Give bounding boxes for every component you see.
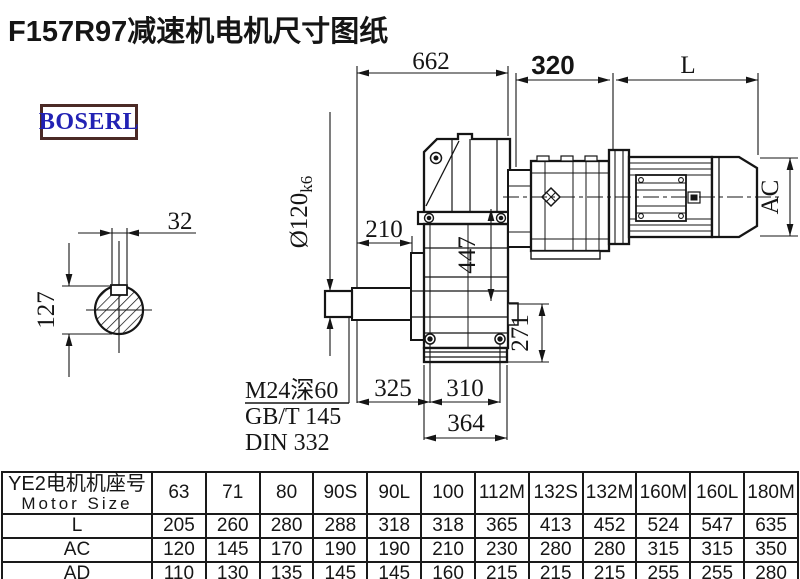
motor-size-header-en: Motor Size — [3, 495, 151, 513]
motor-size-header: YE2电机机座号 Motor Size — [2, 472, 152, 514]
table-header-row: YE2电机机座号 Motor Size 63718090S90L100112M1… — [2, 472, 798, 514]
column-header-63: 63 — [152, 472, 206, 514]
column-header-100: 100 — [421, 472, 475, 514]
dim-center-height: 447 — [454, 236, 481, 274]
cell-L-80: 280 — [260, 514, 314, 538]
cell-AC-112M: 230 — [475, 538, 529, 562]
cell-AC-132S: 280 — [529, 538, 583, 562]
note-standard-din: DIN 332 — [245, 430, 330, 456]
row-label-AC: AC — [2, 538, 152, 562]
dim-shaft-diameter: Ø120k6 — [286, 176, 316, 249]
cell-AD-71: 130 — [206, 562, 260, 579]
dim-shaft-drop: 127 — [33, 291, 60, 329]
cell-AC-160L: 315 — [690, 538, 744, 562]
page: F157R97减速机电机尺寸图纸 BOSERL — [0, 0, 800, 579]
cell-AD-100: 160 — [421, 562, 475, 579]
cell-AC-63: 120 — [152, 538, 206, 562]
cell-AD-90L: 145 — [367, 562, 421, 579]
gearbox-body — [325, 134, 518, 362]
dim-overall-length: 662 — [412, 48, 450, 75]
motor-size-table: YE2电机机座号 Motor Size 63718090S90L100112M1… — [1, 471, 799, 579]
column-header-80: 80 — [260, 472, 314, 514]
column-header-90S: 90S — [313, 472, 367, 514]
cell-L-63: 205 — [152, 514, 206, 538]
cell-AD-90S: 145 — [313, 562, 367, 579]
table-row-AC: AC120145170190190210230280280315315350 — [2, 538, 798, 562]
dim-shaft-step: 210 — [365, 216, 403, 243]
note-tap: M24深60 — [245, 377, 338, 404]
cell-AD-112M: 215 — [475, 562, 529, 579]
cell-AD-80: 135 — [260, 562, 314, 579]
cell-L-100: 318 — [421, 514, 475, 538]
keyway — [111, 285, 127, 295]
dim-flange-width: 364 — [447, 410, 485, 437]
cell-AC-180M: 350 — [744, 538, 798, 562]
input-adapter — [508, 156, 609, 259]
cell-L-112M: 365 — [475, 514, 529, 538]
row-label-L: L — [2, 514, 152, 538]
cell-AC-71: 145 — [206, 538, 260, 562]
column-header-160M: 160M — [636, 472, 690, 514]
cell-L-160L: 547 — [690, 514, 744, 538]
dim-foot-offset: 325 — [374, 375, 412, 402]
cell-AC-132M: 280 — [583, 538, 637, 562]
column-header-132S: 132S — [529, 472, 583, 514]
cell-AD-160M: 255 — [636, 562, 690, 579]
cell-AC-160M: 315 — [636, 538, 690, 562]
cell-AD-63: 110 — [152, 562, 206, 579]
dim-adapter-length: 320 — [531, 50, 574, 80]
cell-AC-90S: 190 — [313, 538, 367, 562]
column-header-71: 71 — [206, 472, 260, 514]
cell-AC-90L: 190 — [367, 538, 421, 562]
dim-motor-length: L — [680, 52, 695, 79]
cell-AC-100: 210 — [421, 538, 475, 562]
cell-AD-180M: 280 — [744, 562, 798, 579]
cell-AD-132S: 215 — [529, 562, 583, 579]
note-standard-gbt: GB/T 145 — [245, 404, 341, 430]
cell-AD-160L: 255 — [690, 562, 744, 579]
table-row-L: L205260280288318318365413452524547635 — [2, 514, 798, 538]
motor-size-header-cn: YE2电机机座号 — [3, 474, 151, 495]
column-header-90L: 90L — [367, 472, 421, 514]
technical-drawing: 32 127 — [0, 0, 800, 470]
cell-L-71: 260 — [206, 514, 260, 538]
column-header-112M: 112M — [475, 472, 529, 514]
cell-AC-80: 170 — [260, 538, 314, 562]
cell-L-132M: 452 — [583, 514, 637, 538]
cell-AD-132M: 215 — [583, 562, 637, 579]
cell-L-90L: 318 — [367, 514, 421, 538]
column-header-180M: 180M — [744, 472, 798, 514]
dim-bolt-spacing: 310 — [446, 375, 484, 402]
cell-L-160M: 524 — [636, 514, 690, 538]
shaft-section-view — [62, 228, 196, 377]
row-label-AD: AD — [2, 562, 152, 579]
column-header-160L: 160L — [690, 472, 744, 514]
cell-L-132S: 413 — [529, 514, 583, 538]
dim-motor-diameter: AC — [757, 180, 784, 215]
dim-base-height: 271 — [507, 314, 534, 352]
table-row-AD: AD110130135145145160215215215255255280 — [2, 562, 798, 579]
dim-key-width: 32 — [168, 208, 193, 235]
cell-L-180M: 635 — [744, 514, 798, 538]
cell-L-90S: 288 — [313, 514, 367, 538]
column-header-132M: 132M — [583, 472, 637, 514]
